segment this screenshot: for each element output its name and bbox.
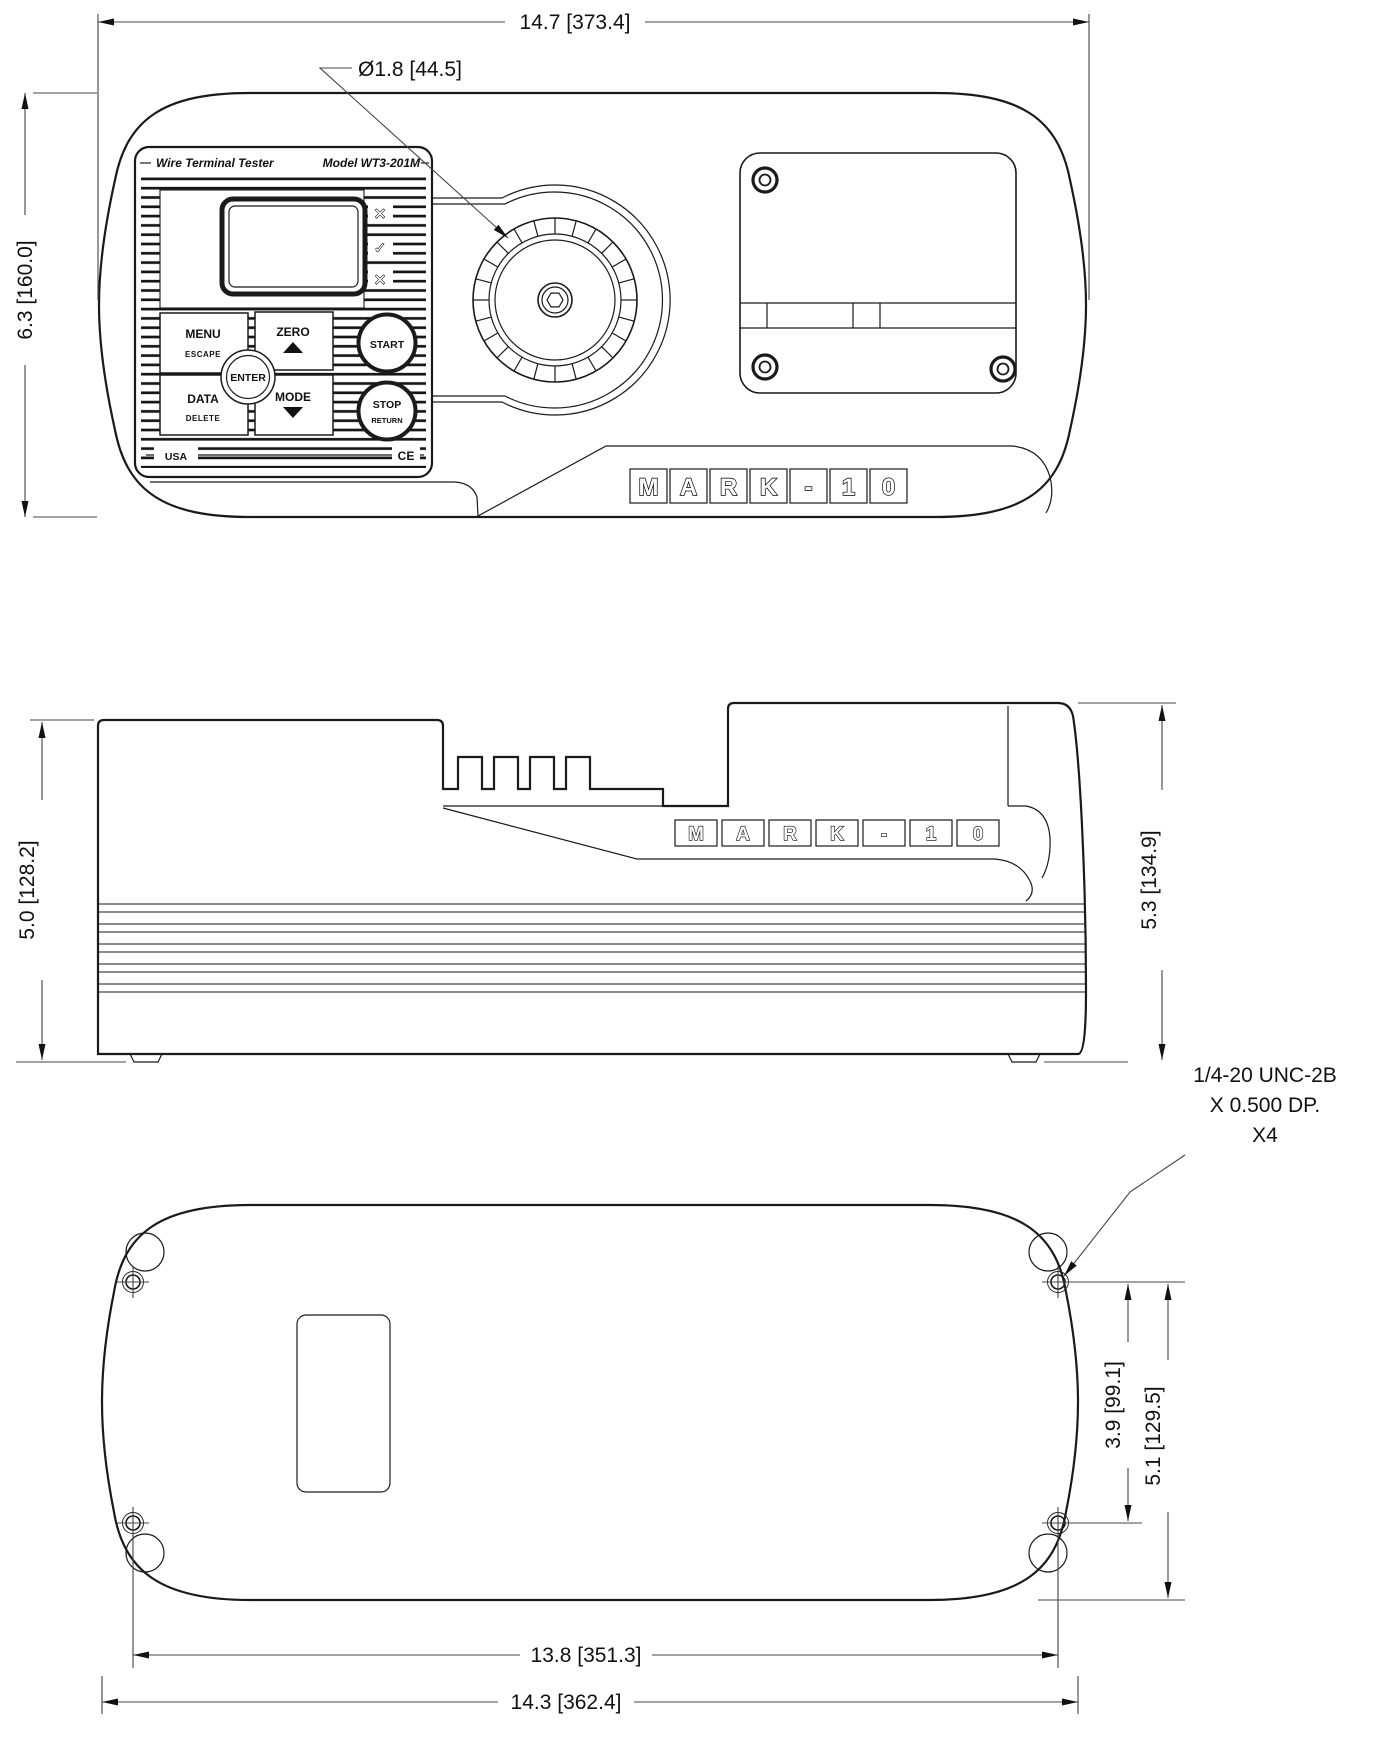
- side-rib-texture: [98, 904, 1086, 992]
- logo-letter: 0: [973, 824, 984, 845]
- technical-drawing: Wire Terminal Tester Model WT3-201M ✕ ✓ …: [0, 0, 1400, 1747]
- dim-base-width: 14.3 [362.4]: [102, 1676, 1078, 1714]
- label-recess: [297, 1315, 390, 1492]
- mode-button-label: MODE: [275, 390, 311, 404]
- rubber-foot: [130, 1054, 162, 1062]
- dim-overall-depth-text: 6.3 [160.0]: [14, 240, 37, 339]
- dim-height-front-text: 5.0 [128.2]: [16, 840, 39, 939]
- stop-button-label: STOP: [373, 399, 401, 411]
- stop-button[interactable]: [359, 383, 416, 440]
- dim-hole-to-edge-depth: 5.1 [129.5]: [1142, 1284, 1172, 1598]
- drawing-sheet: Wire Terminal Tester Model WT3-201M ✕ ✓ …: [0, 0, 1400, 1747]
- knurl-ticks: [473, 218, 637, 382]
- zero-button-label: ZERO: [276, 325, 309, 339]
- dim-overall-width-text: 14.7 [373.4]: [520, 11, 631, 34]
- bottom-view: 1/4-20 UNC-2B X 0.500 DP. X4 3.9 [99.1] …: [102, 1064, 1337, 1714]
- dim-hole-to-edge-depth-text: 5.1 [129.5]: [1142, 1386, 1165, 1485]
- logo-letter: 1: [842, 474, 855, 501]
- side-view: M A R K - 1 0 5.0 [128.2] 5.3 [134.9]: [16, 703, 1176, 1062]
- logo-band-bottom-edge: [443, 808, 1032, 901]
- front-face-edge-left: [150, 482, 478, 516]
- pass-icon: ✓: [374, 240, 387, 257]
- ce-mark: CE: [398, 449, 415, 463]
- logo-letter: A: [736, 824, 750, 845]
- origin-label: USA: [165, 451, 188, 463]
- data-button-label: DATA: [187, 392, 219, 406]
- fail-icon: ✕: [374, 272, 387, 289]
- front-face-top-edge: [1008, 806, 1050, 878]
- foot-circle: [126, 1534, 164, 1572]
- bottom-view-body-outline: [102, 1205, 1078, 1600]
- dim-height-overall-text: 5.3 [134.9]: [1138, 830, 1161, 929]
- dim-height-overall: 5.3 [134.9]: [1078, 703, 1176, 1060]
- knurled-knob[interactable]: [473, 218, 637, 382]
- panel-model: Model WT3-201M: [323, 156, 421, 170]
- logo-letter: -: [881, 824, 887, 845]
- logo-letter: R: [720, 474, 737, 501]
- logo-letter: R: [783, 824, 797, 845]
- knob-diameter-text: Ø1.8 [44.5]: [358, 58, 462, 81]
- start-button-label: START: [370, 339, 405, 351]
- logo-letter: 0: [882, 474, 895, 501]
- dim-hole-spacing-width-text: 13.8 [351.3]: [531, 1644, 642, 1667]
- logo-letter: 1: [926, 824, 937, 845]
- rubber-foot: [1008, 1054, 1040, 1062]
- thread-callout-line1: 1/4-20 UNC-2B: [1193, 1064, 1337, 1087]
- delete-button-label: DELETE: [186, 414, 221, 423]
- display-screen: [222, 199, 365, 294]
- mark10-logo-side: M A R K - 1 0: [675, 820, 999, 846]
- dim-hole-spacing-depth: 3.9 [99.1]: [1102, 1284, 1132, 1521]
- knob-center-screw: [538, 283, 572, 317]
- dim-overall-depth: 6.3 [160.0]: [14, 93, 97, 517]
- dim-base-width-text: 14.3 [362.4]: [511, 1691, 622, 1714]
- logo-letter: M: [639, 474, 659, 501]
- screw-icon: [753, 355, 777, 379]
- foot-circle: [1029, 1233, 1067, 1271]
- logo-letter: K: [760, 474, 778, 501]
- screw-icon: [753, 168, 777, 192]
- hex-socket-icon: [547, 293, 563, 307]
- foot-circle: [126, 1233, 164, 1271]
- foot-circle: [1029, 1534, 1067, 1572]
- screw-icon: [991, 357, 1015, 381]
- thread-callout-line2: X 0.500 DP.: [1210, 1094, 1321, 1117]
- logo-letter: M: [688, 824, 704, 845]
- top-view: Wire Terminal Tester Model WT3-201M ✕ ✓ …: [14, 11, 1089, 517]
- side-view-body-outline: [98, 703, 1086, 1054]
- escape-button-label: ESCAPE: [185, 350, 221, 359]
- return-button-label: RETURN: [371, 416, 402, 425]
- enter-button-label: ENTER: [230, 372, 266, 384]
- dim-height-front: 5.0 [128.2]: [16, 720, 94, 1060]
- menu-button-label: MENU: [185, 327, 220, 341]
- thread-callout-line3: X4: [1252, 1124, 1278, 1147]
- fail-icon: ✕: [374, 206, 387, 223]
- thread-callout: 1/4-20 UNC-2B X 0.500 DP. X4: [1064, 1064, 1337, 1276]
- logo-letter: K: [830, 824, 844, 845]
- logo-letter: -: [805, 474, 813, 501]
- mark10-logo-top: M A R K - 1 0: [630, 469, 907, 503]
- mounting-plate: [740, 153, 1016, 393]
- logo-letter: A: [680, 474, 697, 501]
- dim-hole-spacing-depth-text: 3.9 [99.1]: [1102, 1361, 1125, 1449]
- panel-title: Wire Terminal Tester: [156, 156, 275, 170]
- front-panel: Wire Terminal Tester Model WT3-201M ✕ ✓ …: [135, 147, 432, 477]
